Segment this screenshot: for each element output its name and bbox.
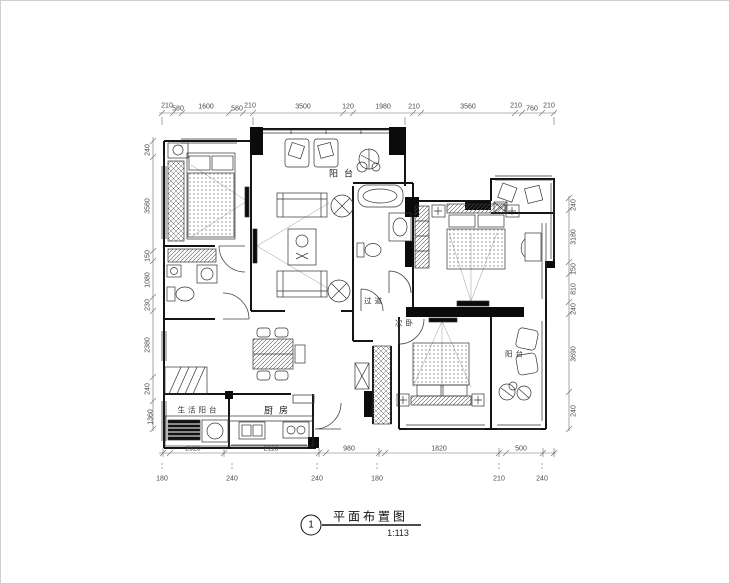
bathroom-main-fixtures: [357, 185, 411, 257]
dim-bottom-outer-3: 180: [371, 476, 383, 483]
room-label-bedroom-secondary: 次卧: [392, 318, 416, 329]
dim-bottom-inner-4: 500: [515, 446, 527, 453]
balcony-right-furniture: [499, 327, 539, 400]
dim-top-10: 210: [510, 103, 522, 110]
dim-top-3: 580: [231, 106, 243, 113]
dim-bottom-outer-0: 180: [156, 476, 168, 483]
dim-left-1: 3580: [145, 198, 152, 214]
floorplan-sheet: 210 580 1600 580 210 3500 120 1980 210 3…: [0, 0, 730, 584]
dining-furniture: [253, 328, 305, 380]
dim-bottom-outer-2: 240: [311, 476, 323, 483]
dim-top-5: 3500: [295, 104, 311, 111]
dim-right-4: 240: [571, 303, 578, 315]
dim-left-3: 1080: [145, 272, 152, 288]
dim-left-4: 230: [145, 299, 152, 311]
dim-top-8: 210: [408, 104, 420, 111]
dim-right-1: 3180: [571, 229, 578, 245]
dim-top-11: 760: [526, 106, 538, 113]
dim-left-2: 150: [145, 250, 152, 262]
room-label-service-balcony: 生活阳台: [175, 405, 220, 416]
dim-left-7: 1360: [148, 409, 155, 425]
dim-top-9: 3560: [460, 104, 476, 111]
floorplan-svg: [1, 1, 730, 584]
room-label-balcony-right: 阳台: [502, 349, 526, 360]
dim-right-2: 150: [571, 263, 578, 275]
sheet-number: 1: [308, 520, 314, 531]
plan-title: 平面布置图: [330, 508, 408, 525]
dim-top-2: 1600: [198, 104, 214, 111]
dim-right-0: 240: [571, 199, 578, 211]
dim-bottom-inner-3: 1820: [431, 446, 447, 453]
dim-bottom-inner-0: 2920: [185, 446, 201, 453]
room-label-balcony-top: 阳台: [323, 167, 359, 180]
bedroom-secondary-furniture: [397, 318, 484, 406]
dim-left-0: 240: [145, 144, 152, 156]
dim-right-5: 3690: [571, 346, 578, 362]
living-room-furniture: [253, 193, 353, 302]
dim-top-6: 120: [342, 104, 354, 111]
balcony-top-right-furniture: [494, 183, 543, 213]
dim-top-7: 1980: [375, 104, 391, 111]
corridor-cabinet: [355, 346, 391, 424]
dim-bottom-outer-1: 240: [226, 476, 238, 483]
dim-top-0: 210: [161, 103, 173, 110]
dim-bottom-outer-5: 240: [536, 476, 548, 483]
dim-bottom-inner-2: 980: [343, 446, 355, 453]
dim-top-4: 210: [244, 103, 256, 110]
dim-bottom-inner-1: 2110: [263, 446, 278, 453]
doors: [219, 246, 424, 429]
dim-top-12: 210: [543, 103, 555, 110]
dim-bottom-outer-4: 210: [493, 476, 505, 483]
room-label-kitchen: 厨房: [258, 404, 294, 417]
bathroom-left-fixtures: [167, 249, 217, 301]
bedroom-top-left-furniture: [168, 143, 249, 241]
dim-right-3: 810: [571, 283, 578, 295]
room-label-corridor: 过道: [361, 296, 385, 307]
dim-right-6: 240: [571, 405, 578, 417]
plan-scale: 1:113: [387, 528, 409, 538]
dim-left-6: 240: [145, 383, 152, 395]
dim-left-5: 2380: [145, 337, 152, 353]
master-bedroom-furniture: [415, 204, 541, 306]
dim-top-1: 580: [172, 106, 184, 113]
kitchen-fixtures: [229, 416, 313, 446]
